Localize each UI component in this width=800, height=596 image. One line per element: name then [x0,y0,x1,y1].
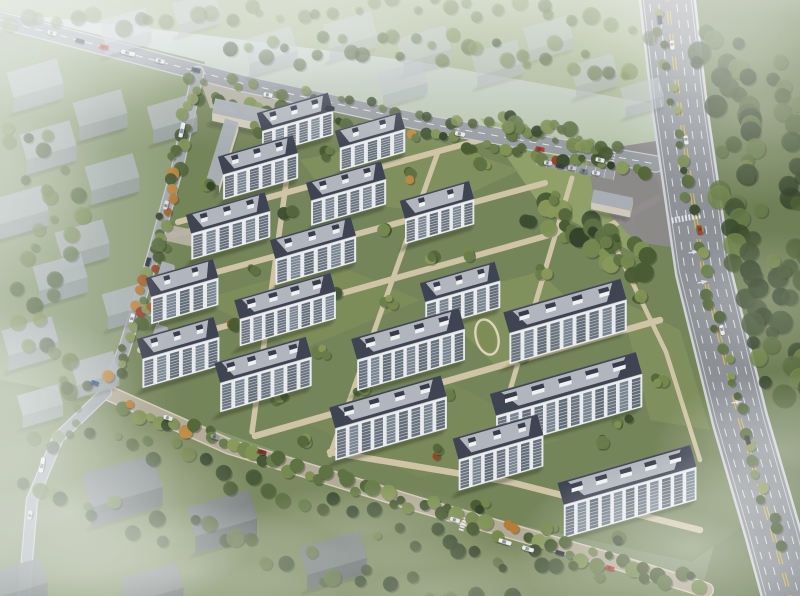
fog-patch [220,485,500,575]
aerial-render: Residential community aerial rendering [0,0,800,596]
render-canvas [0,0,800,596]
